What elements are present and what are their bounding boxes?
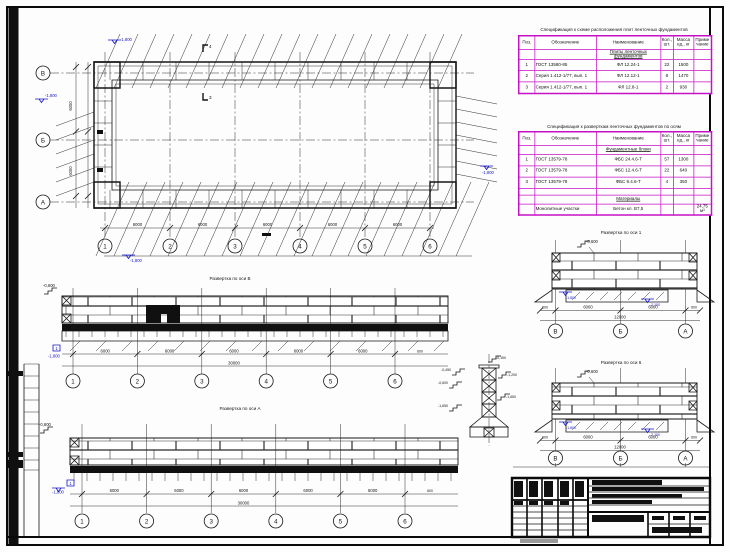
footing-wing bbox=[535, 290, 552, 302]
level-value: -1,800 bbox=[52, 490, 65, 495]
svg-text:600: 600 bbox=[542, 306, 548, 310]
svg-text:Б: Б bbox=[41, 137, 45, 144]
level-value: -0,150 bbox=[496, 356, 506, 360]
group-header: Материалы bbox=[596, 195, 661, 204]
svg-text:6000: 6000 bbox=[101, 349, 111, 354]
svg-text:6000: 6000 bbox=[165, 349, 175, 354]
axis-circle: 4 bbox=[259, 374, 273, 388]
axis-circle: 3 bbox=[195, 374, 209, 388]
level-mark-icon bbox=[449, 382, 462, 388]
monolith-infill bbox=[146, 305, 180, 314]
axis-circle: 2 bbox=[140, 514, 154, 528]
svg-text:6000: 6000 bbox=[358, 349, 368, 354]
axis-circle: 2 bbox=[163, 239, 177, 253]
level-value: -0,600 bbox=[39, 422, 52, 427]
detail-axis-1: Развертка по оси 1 -0,600 -1,800 -2,100 … bbox=[535, 230, 714, 338]
svg-text:5: 5 bbox=[339, 518, 343, 525]
axis-circle: 1 bbox=[75, 514, 89, 528]
svg-text:В: В bbox=[553, 328, 557, 335]
elevation-mid: Развертка по оси В -0,600 1 -1,800 6000 … bbox=[43, 276, 448, 388]
svg-text:6000: 6000 bbox=[229, 349, 239, 354]
level-mark-icon bbox=[452, 369, 465, 375]
svg-text:600: 600 bbox=[542, 436, 548, 440]
axis-circle: 3 bbox=[228, 239, 242, 253]
axis-circle: 4 bbox=[293, 239, 307, 253]
spec-table-1: Поз. Обозначение Наименование Кол., шт. … bbox=[518, 35, 712, 94]
svg-text:4: 4 bbox=[264, 378, 268, 385]
dim-label: 6000 bbox=[198, 222, 208, 227]
level-value: -1,800 bbox=[120, 37, 133, 42]
col-header: Кол., шт. bbox=[661, 132, 674, 146]
view-title: Развертка по оси А bbox=[219, 406, 261, 411]
axis-circle: В bbox=[36, 66, 50, 80]
dim-total: 12000 bbox=[614, 445, 626, 450]
svg-text:3: 3 bbox=[200, 378, 204, 385]
leader-fan-left bbox=[56, 112, 94, 196]
svg-text:600: 600 bbox=[691, 306, 697, 310]
blueprint-sheet: { "axes": { "numbers": ["1","2","3","4",… bbox=[0, 0, 730, 552]
svg-text:А: А bbox=[41, 199, 46, 206]
svg-text:6: 6 bbox=[428, 243, 432, 250]
dim-label: 6000 bbox=[393, 222, 403, 227]
axis-circle: А bbox=[679, 451, 693, 465]
section-view: -0,150 -0,450 -0,600 -1,650 -1,200 -1,65… bbox=[438, 354, 517, 446]
level-value: -1,800 bbox=[48, 354, 61, 359]
svg-text:5: 5 bbox=[363, 243, 367, 250]
col-header: Обозначение bbox=[535, 132, 597, 146]
svg-text:6000: 6000 bbox=[239, 488, 249, 493]
axis-circle: 5 bbox=[333, 514, 347, 528]
svg-text:2: 2 bbox=[136, 378, 140, 385]
svg-text:6000: 6000 bbox=[583, 435, 593, 440]
axis-circle: В bbox=[549, 451, 563, 465]
axis-circle: 5 bbox=[324, 374, 338, 388]
axis-circle: 6 bbox=[398, 514, 412, 528]
col-header: Примечание bbox=[694, 132, 712, 146]
svg-text:1: 1 bbox=[71, 378, 75, 385]
level-value: -1,800 bbox=[566, 426, 576, 430]
svg-text:5: 5 bbox=[329, 378, 333, 385]
level-mark-icon bbox=[559, 292, 572, 296]
svg-text:Б: Б bbox=[618, 455, 622, 462]
svg-text:2: 2 bbox=[168, 243, 172, 250]
margin-stamp-ladder bbox=[24, 364, 39, 536]
svg-text:4: 4 bbox=[298, 243, 302, 250]
title-block bbox=[512, 463, 710, 543]
svg-text:6000: 6000 bbox=[174, 488, 184, 493]
view-title: Развертка по оси 6 bbox=[601, 360, 642, 365]
view-title: Развертка по оси В bbox=[209, 276, 250, 281]
section-flag: 3 bbox=[209, 95, 212, 100]
level-value: -1,650 bbox=[506, 395, 516, 399]
level-mark-icon bbox=[449, 405, 462, 411]
pos-flag: 1 bbox=[55, 346, 58, 351]
dim-total: 12000 bbox=[614, 315, 626, 320]
axis-circle: Б bbox=[614, 324, 628, 338]
col-header: Масса ед., кг bbox=[673, 132, 693, 146]
level-mark-icon bbox=[35, 99, 48, 103]
svg-text:6000: 6000 bbox=[368, 488, 378, 493]
axis-circle: А bbox=[679, 324, 693, 338]
axis-circle: 6 bbox=[388, 374, 402, 388]
axis-circle: 2 bbox=[130, 374, 144, 388]
section-flag: 4 bbox=[209, 44, 212, 49]
col-header: Масса ед., кг bbox=[673, 36, 693, 50]
dim-label: 6000 bbox=[263, 222, 273, 227]
dim-label: 6000 bbox=[68, 166, 73, 176]
elevation-bottom: Развертка по оси А -0,600 1 -1,800 6000 … bbox=[39, 406, 458, 528]
svg-text:6000: 6000 bbox=[294, 349, 304, 354]
axis-circle: 1 bbox=[98, 239, 112, 253]
level-value: -1,800 bbox=[130, 258, 143, 263]
svg-text:6: 6 bbox=[403, 518, 407, 525]
dim-label: 6000 bbox=[68, 101, 73, 111]
svg-text:600: 600 bbox=[691, 436, 697, 440]
col-header: Кол., шт. bbox=[661, 36, 674, 50]
monolith-infill bbox=[146, 314, 161, 323]
level-value: -1,800 bbox=[566, 296, 576, 300]
svg-text:4: 4 bbox=[274, 518, 278, 525]
monolithic-belt bbox=[62, 324, 448, 331]
svg-text:А: А bbox=[683, 455, 688, 462]
svg-text:6: 6 bbox=[393, 378, 397, 385]
svg-text:6000: 6000 bbox=[648, 305, 658, 310]
dim-total: 30000 bbox=[228, 360, 240, 365]
view-title: Развертка по оси 1 bbox=[601, 230, 642, 235]
col-header: Наименование bbox=[596, 36, 661, 50]
axis-circle: В bbox=[549, 324, 563, 338]
col-header: Примечание bbox=[694, 36, 712, 50]
footing-wing bbox=[697, 420, 714, 432]
svg-text:6000: 6000 bbox=[303, 488, 313, 493]
format-note-smudge bbox=[520, 539, 558, 543]
col-header: Обозначение bbox=[535, 36, 597, 50]
dim-label: 6000 bbox=[133, 222, 143, 227]
level-value: -0,600 bbox=[438, 381, 448, 385]
footing-wing bbox=[535, 420, 552, 432]
axis-circle: 3 bbox=[204, 514, 218, 528]
axis-circle: Б bbox=[36, 133, 50, 147]
axis-circle: 4 bbox=[269, 514, 283, 528]
pos-flag: 1 bbox=[69, 481, 72, 486]
spec-table-1-title: Спецификация к схеме расположения плит л… bbox=[540, 27, 688, 32]
col-header: Наименование bbox=[596, 132, 661, 146]
level-mark-icon bbox=[44, 288, 57, 294]
axis-circle: 6 bbox=[423, 239, 437, 253]
level-value: -1,650 bbox=[438, 404, 448, 408]
svg-text:В: В bbox=[41, 70, 45, 77]
svg-text:А: А bbox=[683, 328, 688, 335]
col-header: Поз. bbox=[519, 132, 535, 146]
level-value: -0,600 bbox=[43, 283, 56, 288]
spec-table-2-title: Спецификация к разверткам ленточных фунд… bbox=[547, 124, 681, 129]
col-header: Поз. bbox=[519, 36, 535, 50]
dim-total: 30000 bbox=[238, 500, 250, 505]
svg-text:1: 1 bbox=[103, 243, 107, 250]
footing-wing bbox=[697, 290, 714, 302]
group-header: Плиты ленточных фундаментов bbox=[596, 49, 661, 59]
svg-text:3: 3 bbox=[209, 518, 213, 525]
spec-table-2: Поз. Обозначение Наименование Кол., шт. … bbox=[518, 131, 712, 216]
level-value: -0,600 bbox=[586, 239, 599, 244]
svg-text:600: 600 bbox=[417, 350, 423, 354]
monolithic-belt bbox=[70, 466, 458, 473]
dim-label: 6000 bbox=[328, 222, 338, 227]
axis-circle: 1 bbox=[66, 374, 80, 388]
svg-text:6000: 6000 bbox=[583, 305, 593, 310]
group-header: Фундаментные блоки bbox=[596, 145, 661, 154]
level-value: -1,200 bbox=[507, 373, 517, 377]
plan-view: 6000 6000 6000 6000 6000 6000 6000 4 3 -… bbox=[35, 34, 497, 263]
svg-text:1: 1 bbox=[80, 518, 84, 525]
svg-text:2: 2 bbox=[145, 518, 149, 525]
svg-text:Б: Б bbox=[618, 328, 622, 335]
level-value: -1,800 bbox=[482, 170, 495, 175]
axis-circle: 5 bbox=[358, 239, 372, 253]
level-value: -0,600 bbox=[586, 369, 599, 374]
svg-text:6000: 6000 bbox=[110, 488, 120, 493]
svg-text:6000: 6000 bbox=[648, 435, 658, 440]
svg-text:600: 600 bbox=[427, 489, 433, 493]
level-mark-icon bbox=[559, 422, 572, 426]
detail-axis-6: Развертка по оси 6 -0,600 -1,800 -2,100 … bbox=[535, 360, 714, 465]
monolith-infill bbox=[167, 314, 180, 323]
level-value: -1,800 bbox=[45, 93, 58, 98]
axis-circle: А bbox=[36, 195, 50, 209]
svg-text:В: В bbox=[553, 455, 557, 462]
level-mark-icon bbox=[40, 427, 53, 433]
level-value: -0,450 bbox=[441, 368, 451, 372]
axis-circle: Б bbox=[614, 451, 628, 465]
svg-text:3: 3 bbox=[233, 243, 237, 250]
